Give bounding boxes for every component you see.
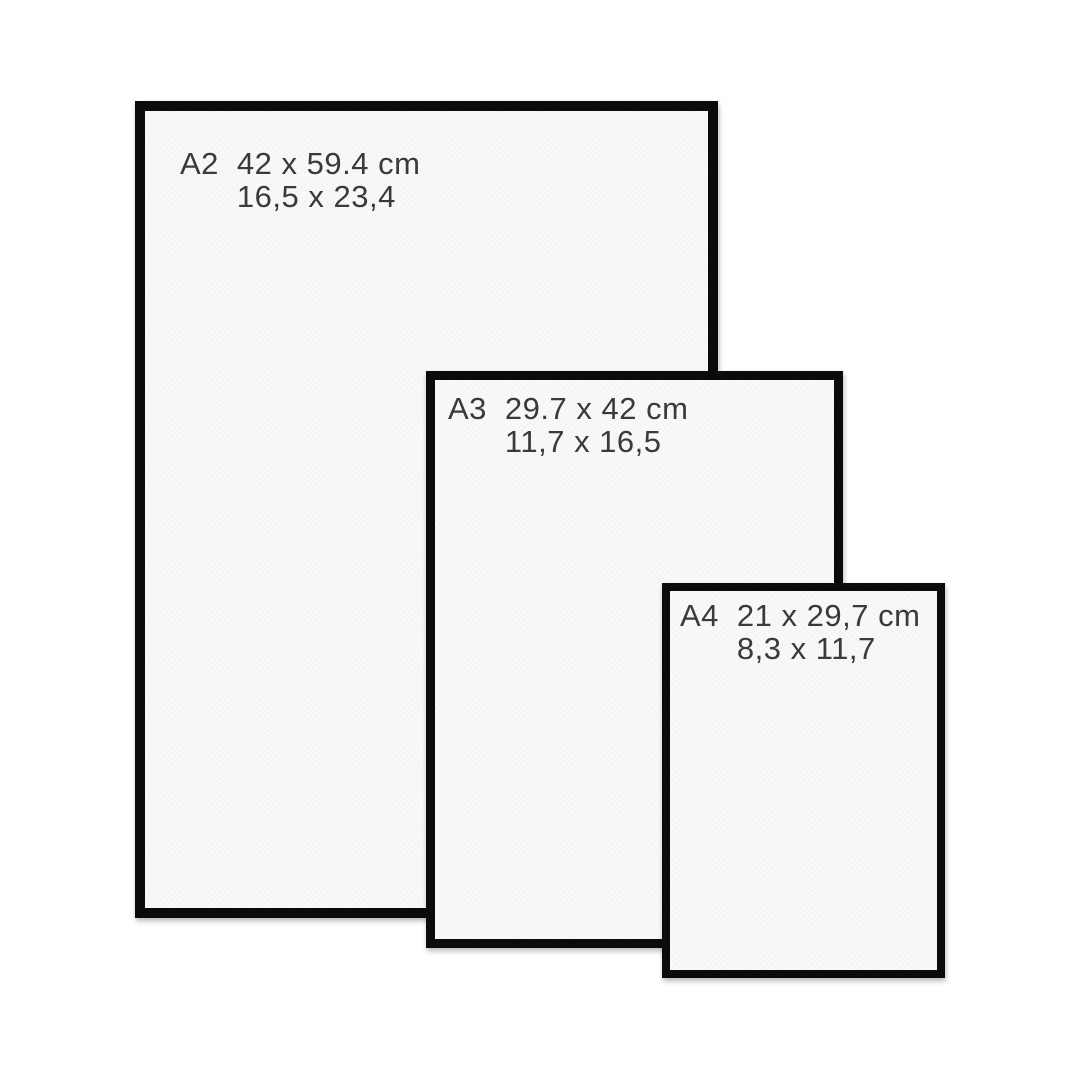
frame-a4-label: A4 21 x 29,7 cm 8,3 x 11,7	[670, 591, 937, 665]
size-code-a2: A2	[180, 147, 219, 180]
frame-a3-inches: 11,7 x 16,5	[505, 425, 688, 458]
frame-a2-label: A2 42 x 59.4 cm 16,5 x 23,4	[145, 111, 708, 213]
frame-a2-inches: 16,5 x 23,4	[237, 180, 420, 213]
size-code-a4: A4	[680, 599, 719, 632]
frame-a3-label: A3 29.7 x 42 cm 11,7 x 16,5	[435, 380, 834, 458]
frame-a4-inches: 8,3 x 11,7	[737, 632, 920, 665]
frame-a4-cm: 21 x 29,7 cm	[737, 599, 920, 632]
size-comparison-diagram: A2 42 x 59.4 cm 16,5 x 23,4 A3 29.7 x 42…	[0, 0, 1080, 1080]
frame-a4-dimensions: 21 x 29,7 cm 8,3 x 11,7	[737, 599, 920, 665]
size-code-a3: A3	[448, 392, 487, 425]
frame-a2-dimensions: 42 x 59.4 cm 16,5 x 23,4	[237, 147, 420, 213]
frame-a2-cm: 42 x 59.4 cm	[237, 147, 420, 180]
frame-a3-dimensions: 29.7 x 42 cm 11,7 x 16,5	[505, 392, 688, 458]
frame-a4: A4 21 x 29,7 cm 8,3 x 11,7	[662, 583, 945, 978]
frame-a3-cm: 29.7 x 42 cm	[505, 392, 688, 425]
